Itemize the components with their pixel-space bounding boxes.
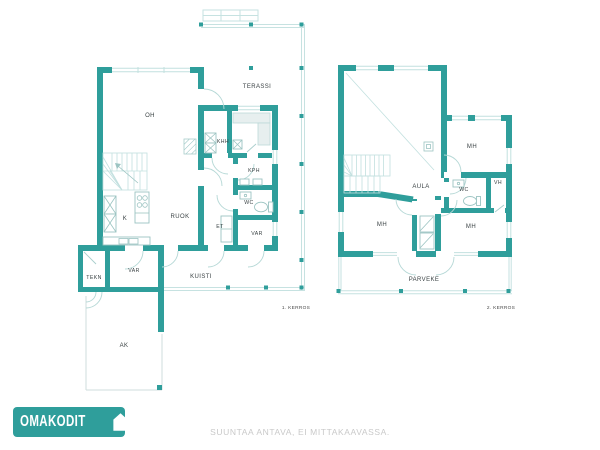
room-label-khh: KHH [217, 139, 229, 145]
carport-outline [86, 292, 162, 390]
room-label-aula: AULA [412, 184, 429, 190]
room-label-kuisti: KUISTI [190, 274, 212, 280]
fridge-icon [104, 196, 116, 232]
room-label-ruok: RUOK [171, 214, 190, 220]
chimney-icon [184, 139, 196, 154]
room-label-et: ET [216, 224, 224, 230]
room-label-mh-left: MH [377, 222, 387, 228]
floor2-caption: 2. KERROS [487, 305, 515, 311]
exterior-stairs-icon [203, 10, 258, 21]
room-label-terassi: TERASSI [243, 84, 271, 90]
kitchen-counter-sink-icon [103, 237, 150, 245]
stairs2-icon [344, 155, 390, 193]
closets-icon [420, 216, 434, 249]
room-label-ak: AK [120, 343, 129, 349]
floor2-plan: MH AULA WC VH MH MH PARVEKE 2. KERROS [337, 65, 516, 311]
room-label-k: K [123, 216, 127, 222]
room-label-kph: KPH [248, 168, 260, 174]
room-label-var-entry: VAR [251, 231, 262, 237]
room-label-oh: OH [145, 113, 155, 119]
stairs-icon [103, 153, 147, 190]
room-label-tekn: TEKN [86, 275, 101, 281]
floorplan-drawing: OH TERASSI KHH KPH WC K RUOK ET VAR TEKN… [0, 0, 600, 450]
room-label-mh-right: MH [466, 224, 476, 230]
toilet-icon [255, 202, 274, 212]
room-label-parveke: PARVEKE [409, 277, 440, 283]
disclaimer-text: SUUNTAA ANTAVA, EI MITTAKAAVASSA. [0, 427, 600, 437]
room-label-vh: VH [494, 180, 502, 186]
room-label-var-storage: VAR [128, 268, 139, 274]
floor1-caption: 1. KERROS [282, 305, 310, 311]
room-label-wc2: WC [459, 187, 468, 193]
laundry-appliances-icon [205, 133, 216, 153]
floorplan-page: OH TERASSI KHH KPH WC K RUOK ET VAR TEKN… [0, 0, 600, 450]
room-label-wc1: WC [244, 200, 253, 206]
kitchen-island-stove-icon [135, 192, 149, 223]
balcony-deck [337, 257, 513, 294]
floor1-plan: OH TERASSI KHH KPH WC K RUOK ET VAR TEKN… [78, 10, 310, 390]
sauna-benches-icon [233, 113, 270, 149]
room-label-mh-top: MH [467, 144, 477, 150]
